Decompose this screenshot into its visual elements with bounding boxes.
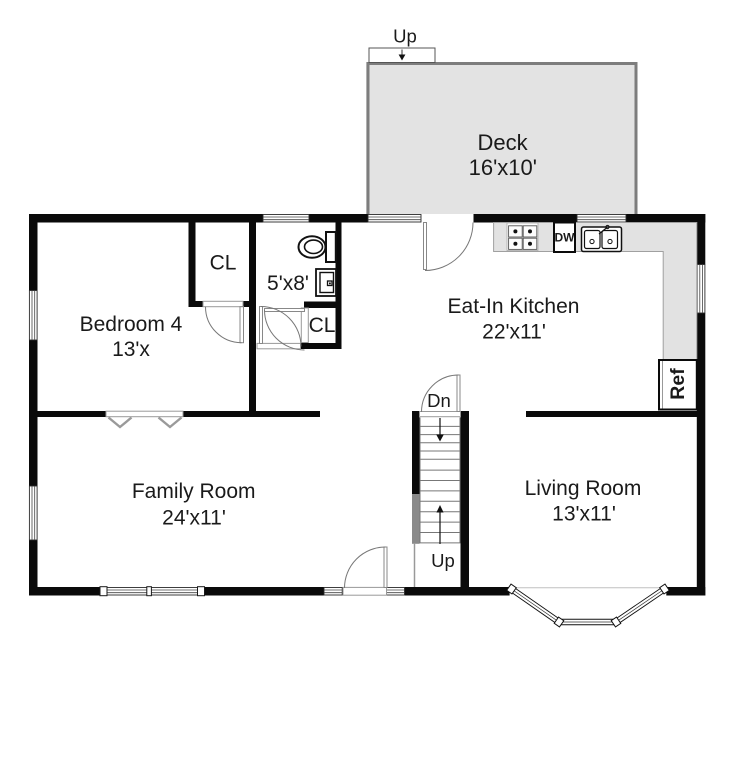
svg-text:CL: CL (210, 251, 237, 274)
svg-text:Living Room: Living Room (525, 477, 642, 500)
svg-text:Family Room: Family Room (132, 480, 256, 503)
svg-text:Ref: Ref (667, 368, 689, 400)
svg-text:Bedroom 4: Bedroom 4 (80, 313, 183, 336)
svg-text:13'x11': 13'x11' (552, 503, 616, 526)
svg-text:16'x10': 16'x10' (469, 155, 537, 180)
svg-text:5'x8': 5'x8' (267, 272, 309, 295)
svg-text:Deck: Deck (478, 130, 529, 155)
svg-text:24'x11': 24'x11' (162, 507, 226, 530)
svg-text:Dn: Dn (427, 390, 451, 411)
svg-text:Up: Up (393, 26, 417, 47)
svg-text:CL: CL (309, 314, 336, 337)
svg-text:13'x: 13'x (112, 338, 150, 361)
svg-text:Eat-In Kitchen: Eat-In Kitchen (448, 295, 580, 318)
svg-text:22'x11': 22'x11' (482, 321, 546, 344)
svg-text:Up: Up (431, 550, 455, 571)
svg-text:DW: DW (555, 231, 576, 245)
